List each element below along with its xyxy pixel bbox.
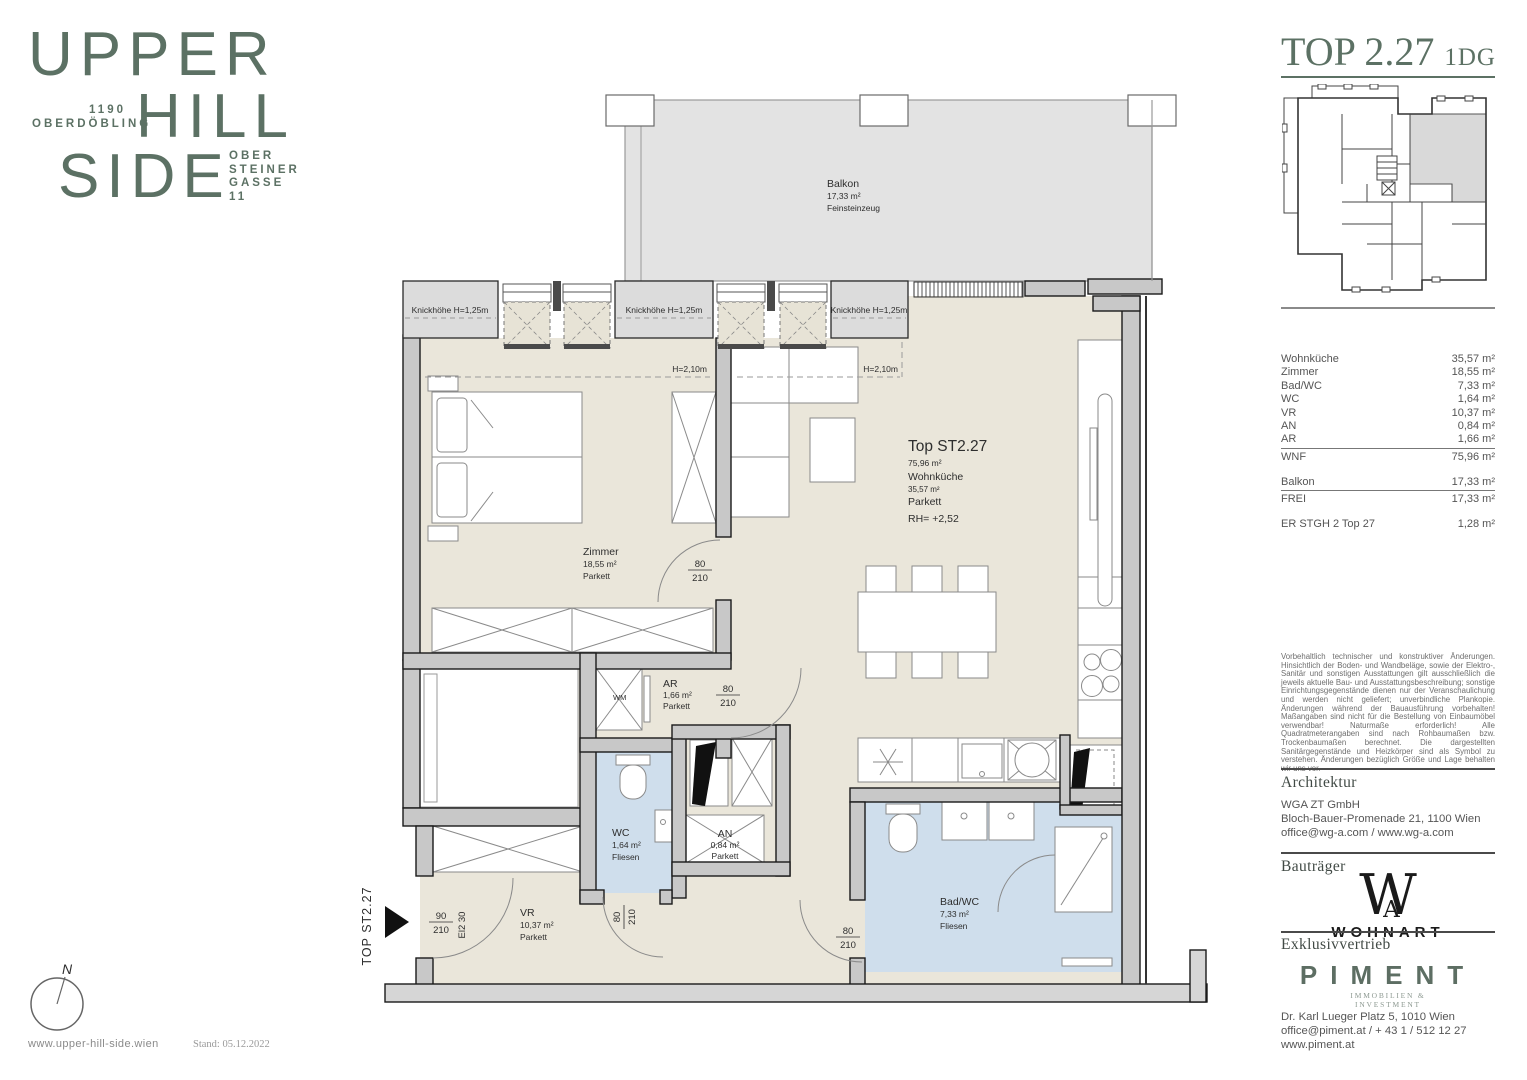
svg-text:210: 210 (433, 925, 449, 936)
svg-text:210: 210 (627, 909, 638, 925)
knick-label-3: Knickhöhe H=1,25m (831, 305, 908, 315)
h210-label-2: H=2,10m (863, 364, 898, 374)
svg-text:80: 80 (843, 926, 854, 937)
sink-1 (942, 800, 987, 840)
sink-2 (989, 800, 1034, 840)
svg-text:1,64 m²: 1,64 m² (612, 840, 641, 850)
shower (1055, 827, 1112, 912)
svg-text:WC: WC (612, 827, 630, 839)
kitchen-counter-right (1078, 340, 1122, 738)
wardrobe-zimmer-right (672, 392, 716, 523)
knick-label-2: Knickhöhe H=1,25m (626, 305, 703, 315)
svg-text:210: 210 (720, 698, 736, 709)
wardrobe-vr (433, 826, 583, 872)
entry-fire-class: El2 30 (457, 912, 468, 939)
wardrobe-zimmer-bottom (432, 608, 713, 652)
small-sink (655, 810, 672, 842)
dining-set (858, 566, 996, 678)
svg-text:Fliesen: Fliesen (940, 921, 968, 931)
svg-text:TOP ST2.27: TOP ST2.27 (360, 886, 374, 965)
svg-text:AR: AR (663, 678, 678, 690)
svg-text:10,37 m²: 10,37 m² (520, 920, 554, 930)
svg-text:Top ST2.27: Top ST2.27 (908, 438, 987, 455)
svg-text:Parkett: Parkett (712, 851, 740, 861)
bed (428, 376, 582, 541)
panel-icon (1098, 394, 1112, 606)
entrance-arrow-icon (385, 906, 409, 938)
unit-tag-vertical: TOP ST2.27 (360, 886, 374, 965)
svg-text:Wohnküche: Wohnküche (908, 471, 963, 483)
svg-text:35,57 m²: 35,57 m² (908, 485, 940, 494)
svg-text:90: 90 (436, 911, 447, 922)
toilet-icon-bad (889, 814, 917, 852)
coffee-table (810, 418, 855, 482)
svg-text:0,84 m²: 0,84 m² (711, 840, 740, 850)
glass-front (914, 282, 1023, 297)
svg-text:7,33 m²: 7,33 m² (940, 909, 969, 919)
h210-label-1: H=2,10m (672, 364, 707, 374)
balkon-area: 17,33 m² (827, 191, 861, 201)
svg-text:80: 80 (612, 912, 623, 923)
knick-label-1: Knickhöhe H=1,25m (412, 305, 489, 315)
svg-text:75,96 m²: 75,96 m² (908, 458, 942, 468)
kitchen-counter-bottom (858, 738, 1062, 782)
svg-text:80: 80 (695, 559, 706, 570)
balkon-floor: Feinsteinzeug (827, 203, 880, 213)
svg-text:18,55 m²: 18,55 m² (583, 559, 617, 569)
label-wm: WM (613, 693, 626, 702)
svg-text:1,66 m²: 1,66 m² (663, 690, 692, 700)
toilet-icon (620, 765, 646, 799)
balkon-name: Balkon (827, 178, 859, 190)
floorplan-drawing: Balkon 17,33 m² Feinsteinzeug (0, 0, 1527, 1080)
svg-text:210: 210 (840, 940, 856, 951)
stair-shaft (420, 669, 578, 807)
round-sink (1008, 740, 1056, 780)
svg-text:210: 210 (692, 573, 708, 584)
svg-text:AN: AN (718, 828, 733, 840)
svg-text:Parkett: Parkett (520, 932, 548, 942)
svg-text:Fliesen: Fliesen (612, 852, 640, 862)
room-balkon: Balkon 17,33 m² Feinsteinzeug (606, 95, 1176, 281)
svg-text:Parkett: Parkett (583, 571, 611, 581)
svg-text:RH= +2,52: RH= +2,52 (908, 513, 959, 525)
svg-text:Bad/WC: Bad/WC (940, 896, 980, 908)
floorplan-page: UPPER 1190 OBERDÖBLING HILL SIDE OBER ST… (0, 0, 1527, 1080)
svg-text:Parkett: Parkett (663, 701, 691, 711)
svg-text:80: 80 (723, 684, 734, 695)
svg-text:Zimmer: Zimmer (583, 546, 619, 558)
svg-text:Parkett: Parkett (908, 496, 941, 508)
svg-text:VR: VR (520, 907, 535, 919)
